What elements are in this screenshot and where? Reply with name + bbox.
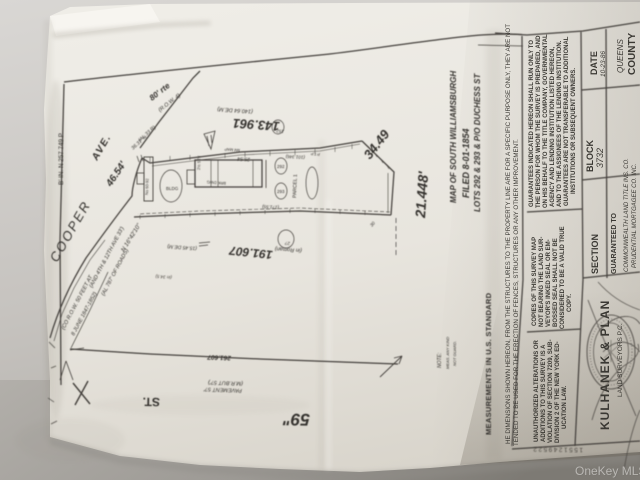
svg-text:292: 292 (277, 164, 285, 169)
svg-text:BLOCK: BLOCK (585, 140, 595, 172)
svg-text:2½ STY: 2½ STY (196, 155, 202, 170)
svg-text:PRUDENTIAL MORTGAGEE CO. INC.: PRUDENTIAL MORTGAGEE CO. INC. (632, 164, 638, 268)
svg-text:LOTS 292 & 293 & P/O DUCHESS S: LOTS 292 & 293 & P/O DUCHESS ST (473, 73, 482, 212)
svg-text:B' IN. N 257 749 P: B' IN. N 257 749 P (58, 133, 65, 185)
svg-text:(1?1.55): (1?1.55) (262, 204, 280, 210)
svg-text:P.T.P: P.T.P (310, 151, 320, 157)
svg-text:COMMONWEALTH LAND TITLE INS. C: COMMONWEALTH LAND TITLE INS. CO. (624, 158, 630, 272)
svg-text:COPIES OF THIS SURVEY MAP: COPIES OF THIS SURVEY MAP (532, 237, 538, 326)
svg-text:DATE: DATE (589, 51, 599, 75)
svg-text:MEASUREMENTS IN U.S. STANDARD: MEASUREMENTS IN U.S. STANDARD (484, 292, 493, 435)
svg-text:AND TO THE ASSIGNEES OF THE LE: AND TO THE ASSIGNEES OF THE LENDING INST… (557, 40, 563, 207)
svg-text:SECTION: SECTION (590, 234, 600, 274)
svg-text:QUEENS: QUEENS (616, 39, 625, 73)
svg-text:GUARANTEES ARE NOT TRANSFERABL: GUARANTEES ARE NOT TRANSFERABLE TO ADDIT… (564, 36, 570, 206)
svg-text:MAP OF SOUTH WILLIAMSBURGH: MAP OF SOUTH WILLIAMSBURGH (449, 71, 458, 203)
svg-text:BOSSED SEAL SHALL NOT BE: BOSSED SEAL SHALL NOT BE (553, 238, 559, 327)
svg-text:ADDITIONS TO THIS SURVEY IS A: ADDITIONS TO THIS SURVEY IS A (541, 344, 547, 442)
svg-text:MEAS. ANY KIND: MEAS. ANY KIND (445, 337, 450, 369)
svg-text:ST.: ST. (142, 395, 160, 409)
svg-text:(101.346): (101.346) (285, 154, 305, 160)
svg-text:LAND SURVEYORS P.C.: LAND SURVEYORS P.C. (617, 323, 624, 397)
svg-text:TENDED TO BE USED FOR THE EREC: TENDED TO BE USED FOR THE ERECTION OF FE… (513, 139, 520, 446)
svg-text:UCATION LAW.: UCATION LAW. (562, 385, 568, 429)
svg-text:NOTE:: NOTE: (437, 352, 443, 368)
svg-text:3732: 3732 (595, 148, 605, 168)
svg-text:HE DIMENSIONS SHOWN HEREON, FR: HE DIMENSIONS SHOWN HEREON, FROM THE STR… (505, 24, 512, 444)
svg-text:DIVISION 2 OF THE NEW YORK ED-: DIVISION 2 OF THE NEW YORK ED- (555, 341, 561, 443)
svg-text:THE PERSON FOR WHOM THE SURVEY: THE PERSON FOR WHOM THE SURVEY IS PREPAR… (536, 35, 542, 208)
svg-text:261.607: 261.607 (207, 353, 232, 361)
svg-text:GUARANTEED TO: GUARANTEED TO (611, 213, 618, 274)
svg-text:1551249522: 1551249522 (532, 445, 583, 453)
svg-text:GUARANTEES INDICATED HEREON SH: GUARANTEES INDICATED HEREON SHALL RUN ON… (529, 40, 535, 207)
svg-text:VIOLATION OF SECTION 7209, SUB: VIOLATION OF SECTION 7209, SUB- (548, 339, 554, 443)
svg-text:293: 293 (277, 189, 285, 194)
svg-text:59": 59" (282, 410, 310, 429)
svg-text:PARCEL 1: PARCEL 1 (292, 174, 299, 198)
svg-text:KULHANEK & PLAN: KULHANEK & PLAN (598, 300, 612, 430)
svg-text:COUNTY: COUNTY (627, 32, 638, 75)
svg-text:FILED 8-01-1854: FILED 8-01-1854 (461, 128, 471, 198)
svg-text:21.448': 21.448' (412, 170, 431, 219)
svg-text:BLDG: BLDG (166, 186, 179, 191)
svg-text:152: 152 (276, 128, 284, 134)
svg-text:UNAUTHORIZED ALTERATIONS OR: UNAUTHORIZED ALTERATIONS OR (534, 339, 540, 442)
svg-text:ON HIS BEHALF TO THE TITLE COM: ON HIS BEHALF TO THE TITLE COMPANY, GOVE… (543, 34, 549, 208)
svg-text:2?: 2? (284, 241, 291, 246)
svg-text:VEYOR'S INKED SEAL OR EM-: VEYOR'S INKED SEAL OR EM- (546, 239, 552, 327)
svg-text:OneKey MLS: OneKey MLS (575, 464, 640, 478)
svg-text:(M.R.BUT 5?'): (M.R.BUT 5?') (208, 379, 243, 386)
svg-text:NOT BEARING THE LAND SUR-: NOT BEARING THE LAND SUR- (539, 237, 545, 327)
svg-text:NOT GUARD.: NOT GUARD. (452, 341, 457, 366)
svg-text:AGENCY AND LENDING INSTITUTION: AGENCY AND LENDING INSTITUTION LISTED HE… (550, 47, 556, 207)
svg-text:COPY.: COPY. (567, 294, 573, 312)
svg-text:CONSIDERED TO BE A VALID TRUE: CONSIDERED TO BE A VALID TRUE (560, 226, 566, 329)
svg-text:10-23-86: 10-23-86 (600, 51, 607, 77)
svg-text:25.54: 25.54 (237, 155, 251, 162)
svg-text:No 60-92: No 60-92 (144, 178, 150, 195)
svg-text:INSTITUTIONS OR SUBSEQUENT OWN: INSTITUTIONS OR SUBSEQUENT OWNERS. (571, 68, 577, 194)
